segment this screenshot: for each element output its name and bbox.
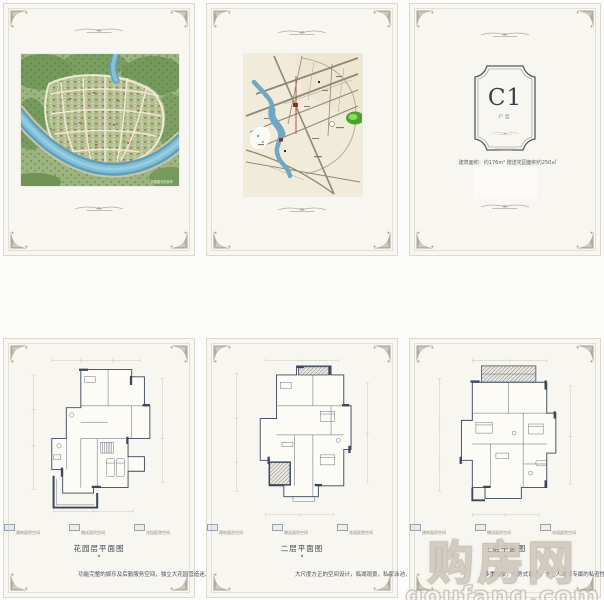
corner-flourish-icon bbox=[169, 10, 188, 29]
corner-flourish-icon bbox=[372, 10, 391, 29]
legend-label: 花园庭院空间 bbox=[146, 530, 170, 536]
corner-flourish-icon bbox=[213, 572, 232, 591]
floorplan-drawing-third bbox=[429, 355, 581, 523]
decorative-sheet bbox=[473, 167, 537, 199]
plan-title: 二层平面图 bbox=[207, 543, 397, 554]
legend-item: 赠送面积空间 bbox=[272, 523, 332, 532]
legend-label: 建筑面积空间 bbox=[16, 530, 40, 536]
legend-swatch bbox=[134, 524, 145, 531]
brochure-page: 效果图仅供参考 bbox=[0, 0, 604, 600]
corner-flourish-icon bbox=[372, 572, 391, 591]
plan-title: 花园层平面图 bbox=[4, 543, 194, 554]
center-flourish-icon bbox=[479, 30, 531, 39]
legend-label: 赠送面积空间 bbox=[284, 530, 308, 536]
corner-flourish-icon bbox=[372, 230, 391, 249]
unit-code: C1 bbox=[466, 87, 544, 110]
plan-description: 功能完整的娱乐及后勤服务空间，独立大花园营造迷人空间。 bbox=[4, 567, 194, 577]
corner-flourish-icon bbox=[575, 230, 594, 249]
corner-flourish-icon bbox=[10, 572, 29, 591]
corner-flourish-icon bbox=[416, 345, 435, 364]
unit-type-label: 户型 bbox=[486, 113, 525, 120]
corner-flourish-icon bbox=[416, 230, 435, 249]
corner-flourish-icon bbox=[575, 10, 594, 29]
legend-swatch bbox=[272, 524, 283, 531]
legend-swatch bbox=[337, 524, 348, 531]
legend-item: 赠送面积空间 bbox=[475, 523, 535, 532]
corner-flourish-icon bbox=[169, 345, 188, 364]
legend-item: 建筑面积空间 bbox=[207, 523, 267, 532]
plan-description: 多重观景，套房式设计，令主人尽享专属的私密性和尊贵感。 bbox=[410, 567, 600, 577]
panel-floorplan-garden: 建筑面积空间 赠送面积空间 花园庭院空间 花园层平面图 功能完整的娱乐及后勤服务… bbox=[3, 338, 195, 598]
legend-item: 赠送面积空间 bbox=[69, 523, 129, 532]
panel-unit-card: C1 户型 建筑面积：约176m² 赠送花园面积约250㎡ bbox=[409, 3, 601, 256]
legend-swatch bbox=[207, 524, 218, 531]
center-flourish-icon bbox=[73, 204, 125, 213]
corner-flourish-icon bbox=[575, 572, 594, 591]
legend-swatch bbox=[410, 524, 421, 531]
center-flourish-icon bbox=[73, 26, 125, 35]
floorplan-legend: 建筑面积空间 赠送面积空间 花园庭院空间 bbox=[207, 523, 397, 532]
unit-area-info: 建筑面积：约176m² 赠送花园面积约250㎡ bbox=[410, 155, 600, 163]
title-ornament bbox=[503, 555, 506, 558]
corner-flourish-icon bbox=[213, 10, 232, 29]
corner-flourish-icon bbox=[213, 345, 232, 364]
plan-title: 三层平面图 bbox=[410, 543, 600, 554]
title-ornament bbox=[97, 555, 100, 558]
legend-swatch bbox=[540, 524, 551, 531]
center-flourish-icon bbox=[276, 205, 328, 214]
corner-flourish-icon bbox=[169, 572, 188, 591]
legend-item: 花园庭院空间 bbox=[337, 523, 397, 532]
legend-swatch bbox=[475, 524, 486, 531]
panel-aerial-view: 效果图仅供参考 bbox=[3, 3, 195, 256]
legend-label: 建筑面积空间 bbox=[422, 530, 446, 536]
panel-floorplan-second: 建筑面积空间 赠送面积空间 花园庭院空间 二层平面图 大尺度方正的空间设计，临湖… bbox=[206, 338, 398, 598]
corner-flourish-icon bbox=[213, 230, 232, 249]
title-ornament bbox=[300, 555, 303, 558]
aerial-caption: 效果图仅供参考 bbox=[151, 179, 173, 184]
legend-item: 花园庭院空间 bbox=[134, 523, 194, 532]
location-map-illustration bbox=[244, 54, 362, 196]
legend-label: 花园庭院空间 bbox=[552, 530, 576, 536]
legend-swatch bbox=[4, 524, 15, 531]
corner-flourish-icon bbox=[416, 10, 435, 29]
legend-label: 建筑面积空间 bbox=[219, 530, 243, 536]
corner-flourish-icon bbox=[10, 345, 29, 364]
legend-label: 花园庭院空间 bbox=[349, 530, 373, 536]
center-flourish-icon bbox=[479, 202, 531, 211]
plan-description: 大尺度方正的空间设计，临湖观景，私家泳池，构成丰富公共活动场所。 bbox=[207, 567, 397, 577]
floorplan-drawing-second bbox=[226, 355, 378, 523]
legend-item: 建筑面积空间 bbox=[4, 523, 64, 532]
panel-floorplan-third: 建筑面积空间 赠送面积空间 花园庭院空间 三层平面图 多重观景，套房式设计，令主… bbox=[409, 338, 601, 598]
panel-location-map bbox=[206, 3, 398, 256]
legend-swatch bbox=[69, 524, 80, 531]
corner-flourish-icon bbox=[169, 230, 188, 249]
corner-flourish-icon bbox=[575, 345, 594, 364]
legend-item: 建筑面积空间 bbox=[410, 523, 470, 532]
aerial-masterplan-illustration: 效果图仅供参考 bbox=[21, 54, 179, 186]
legend-label: 赠送面积空间 bbox=[81, 530, 105, 536]
floorplan-legend: 建筑面积空间 赠送面积空间 花园庭院空间 bbox=[4, 523, 194, 532]
corner-flourish-icon bbox=[10, 230, 29, 249]
floorplan-drawing-garden bbox=[23, 355, 175, 523]
floorplan-legend: 建筑面积空间 赠送面积空间 花园庭院空间 bbox=[410, 523, 600, 532]
center-flourish-icon bbox=[276, 28, 328, 37]
corner-flourish-icon bbox=[372, 345, 391, 364]
corner-flourish-icon bbox=[416, 572, 435, 591]
corner-flourish-icon bbox=[10, 10, 29, 29]
legend-item: 花园庭院空间 bbox=[540, 523, 600, 532]
legend-label: 赠送面积空间 bbox=[487, 530, 511, 536]
unit-badge: C1 户型 bbox=[466, 61, 544, 155]
